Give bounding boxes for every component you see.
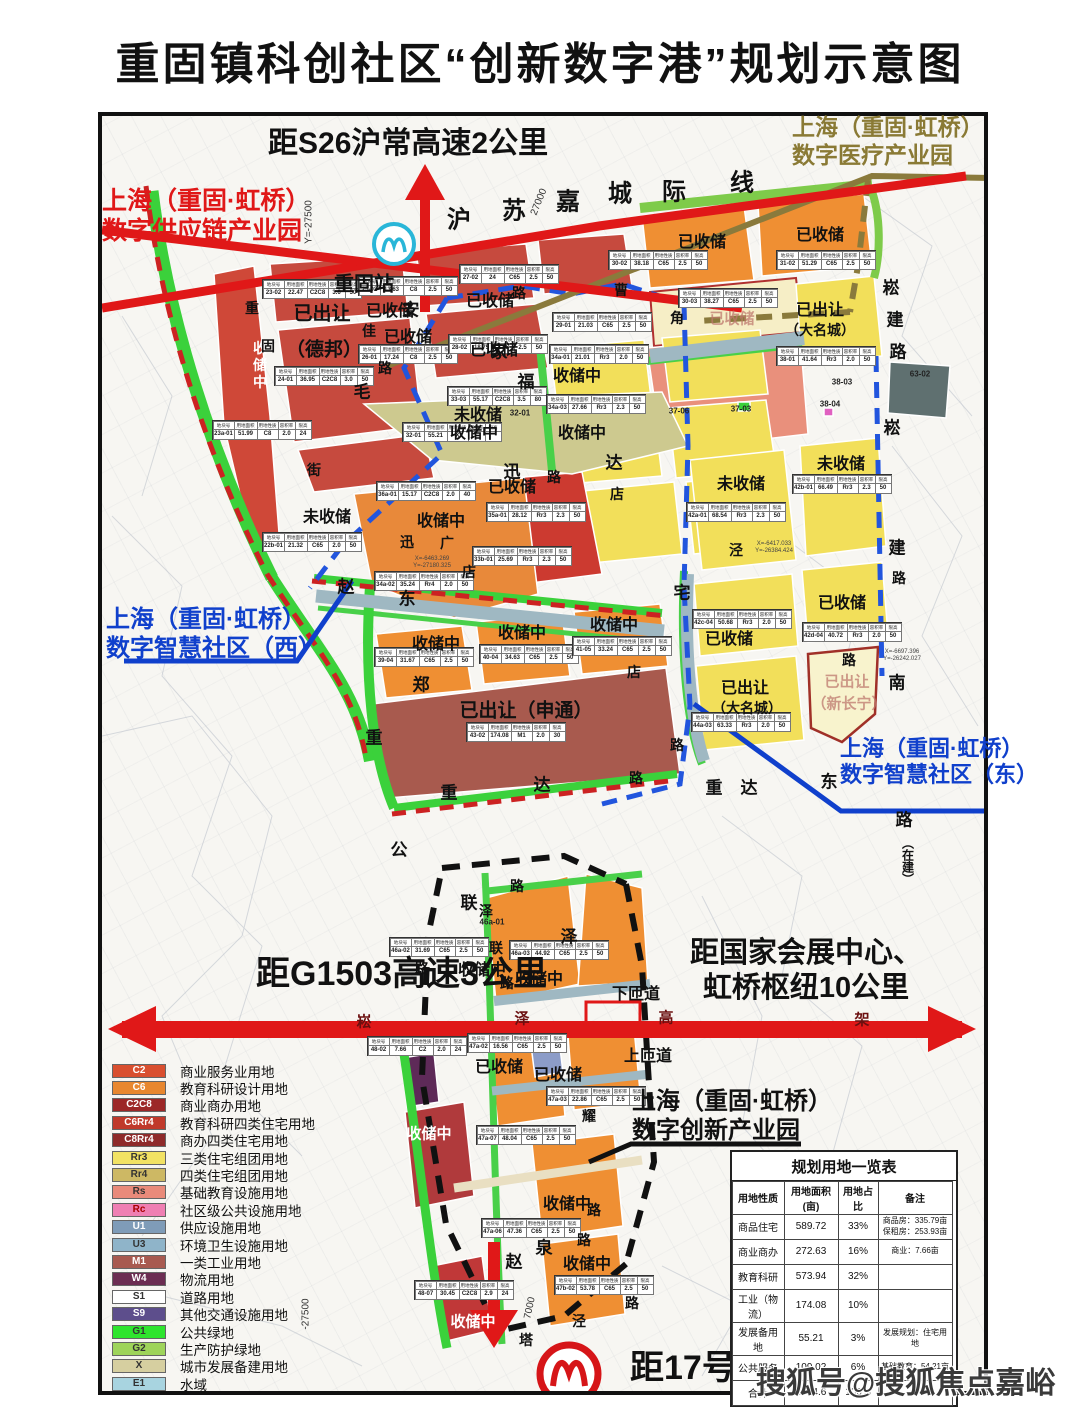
legend-swatch: M1 [112,1255,166,1269]
remark-line: 商业：7.66亩 [891,1246,939,1257]
table-cell: 商业商办 [732,1239,785,1265]
legend-swatch: U1 [112,1220,166,1234]
road-name-char: 路 [378,358,392,378]
plot-status: （大名城） [785,320,855,340]
coordinate-label: X=-6463.269 [415,556,450,562]
plot-status: 已收储 [678,228,726,252]
railway-name-char: 苏 [502,191,526,226]
road-name-char: 泾 [729,540,743,560]
annotation-smart-east: 上海（重固·虹桥） 数字智慧社区（东） [840,736,1038,789]
legend-swatch: S1 [112,1290,166,1304]
road-name-char: 店 [462,562,476,582]
legend-item: Rr3三类住宅组团用地 [112,1149,315,1166]
road-name-char: 迅 [504,458,521,483]
annotation-line: 数字创新产业园 [632,1117,832,1146]
coordinate-label: 7000 [522,1296,537,1320]
legend-swatch: X [112,1359,166,1373]
legend-item: U1供应设施用地 [112,1219,315,1236]
road-name-char: 重 [441,779,458,804]
road-name-char: 泉 [536,1234,553,1259]
coordinate-label: Y=-26242.027 [883,656,921,662]
plot-status: 已出让 [721,674,769,698]
annotation-line: 数字智慧社区（西） [106,635,322,664]
road-name-char: 公 [391,836,408,861]
road-name-char: 曹 [614,280,628,300]
plot-status: 未收储 [303,503,351,527]
annotation-g1503: 距G1503高速3公里 [256,954,547,995]
legend-swatch: C2C8 [112,1098,166,1112]
road-name-char: 塔 [519,1330,533,1350]
road-name-char: 路 [625,1293,639,1313]
plot-id: 46a-01 [480,918,505,927]
legend-item: W4物流用地 [112,1271,315,1288]
road-name-char: 南 [889,669,906,694]
legend-swatch: C2 [112,1064,166,1078]
table-cell: 174.08 [784,1289,839,1323]
table-cell: 工业（物流） [732,1289,785,1323]
plot-status: 收储中 [590,611,638,635]
plot-id: 32-01 [510,409,530,418]
legend-item: Rs基础教育设施用地 [112,1184,315,1201]
road-name-char: 家 [491,338,508,363]
legend-swatch: W4 [112,1272,166,1286]
annotation-line: 虹桥枢纽10公里 [690,971,922,1006]
annotation-line: 数字医疗产业园 [792,142,984,170]
annotation-medical-park: 上海（重固·虹桥） 数字医疗产业园 [792,114,984,169]
land-use-table-title: 规划用地一览表 [732,1152,956,1180]
plot-status: 已收储 [796,221,844,245]
annotation-line: 上海（重固·虹桥） [102,186,310,216]
legend-swatch: E1 [112,1377,166,1391]
plot-id: 63-02 [910,370,930,379]
legend-item: X城市发展备建用地 [112,1358,315,1375]
road-name-char: 广 [440,533,454,553]
road-name-char: 赵 [338,573,355,598]
road-name-char: 路 [890,338,907,363]
road-name-char: 赵 [506,1248,523,1273]
road-name-char: 路 [842,650,856,670]
legend-item: C6Rr4教育科研四类住宅用地 [112,1114,315,1131]
table-cell: 272.63 [784,1239,839,1265]
road-name-char: 路 [510,876,524,896]
table-cell: 发展备用地 [732,1322,785,1356]
plot-id: 38-03 [832,378,852,387]
legend-item: C6教育科研设计用地 [112,1079,315,1096]
road-name-char: 崧 [883,274,900,299]
plot-status: 已出让 [293,299,350,326]
coordinate-label: X=-6697.396 [885,649,920,655]
plot-status: 已收储 [384,323,432,347]
plot-status: 已出让 [824,671,869,692]
road-name-char: 固 [261,336,275,356]
plot-status: 已收储 [705,625,753,649]
road-name-char: 路 [587,1200,601,1220]
annotation-smart-west: 上海（重固·虹桥） 数字智慧社区（西） [106,606,322,664]
plot-status: 收储中 [417,507,465,531]
legend-item: S9其他交通设施用地 [112,1305,315,1322]
ramp-label: 下匝道 [612,980,660,1004]
table-remark-cell: 发展规划：住宅用地 [878,1322,953,1356]
plot-status: 已出让 [796,296,844,320]
road-name-char: 店 [627,662,641,682]
watermark: 搜狐号@搜狐焦点嘉峪关站 [756,1358,1080,1407]
legend-swatch: Rc [112,1203,166,1217]
plot-status: 已出让（申通） [459,696,592,723]
annotation-line: 上海（重固·虹桥） [792,114,984,142]
plot-status: 收储中 [450,1311,495,1332]
legend-swatch: C6Rr4 [112,1116,166,1130]
road-name-char: 达 [741,774,758,799]
viaduct-name-char: 高 [658,1007,673,1028]
coordinate-label: Y=-26384.424 [755,548,793,554]
plot-status: 已收储 [818,589,866,613]
coordinate-label: Y=-27180.325 [413,563,451,569]
plot-id: 37-06 [669,407,689,416]
legend-item: E1水域 [112,1375,315,1392]
table-cell: 10% [838,1289,879,1323]
railway-name-char: 城 [608,174,632,209]
road-name-char: 东 [821,768,838,793]
road-name-char: 重 [366,724,383,749]
station-label: 重固站 [334,268,394,297]
annotation-line: 距国家会展中心、 [690,936,922,971]
legend-swatch: Rr4 [112,1168,166,1182]
viaduct-name-char: 架 [854,1009,869,1030]
annotation-line: 数字供应链产业园 [102,216,310,246]
legend-item: U3环境卫生设施用地 [112,1236,315,1253]
table-cell: 32% [838,1264,879,1290]
annotation-convention: 距国家会展中心、 虹桥枢纽10公里 [690,936,922,1006]
legend-item: Rr4四类住宅组团用地 [112,1166,315,1183]
road-name-char: 佳 [362,321,376,341]
table-cell: 3% [838,1322,879,1356]
table-remark-cell: 商品房：335.79亩保租房：253.93亩 [878,1214,953,1240]
plot-status: 已收储 [709,308,754,329]
legend-item: C2C8商业商办用地 [112,1097,315,1114]
table-header-cell: 用地面积(亩) [784,1181,839,1215]
road-name-char: 街 [307,460,321,480]
road-name-char: 崧 [884,414,901,439]
road-name-char: 路 [512,283,526,303]
road-name-char: 路 [577,1230,591,1250]
legend-swatch: S9 [112,1307,166,1321]
ramp-label: 上匝道 [624,1042,672,1066]
table-header-cell: 用地性质 [732,1181,785,1215]
road-name-char: 毛 [354,378,371,403]
road-name-char: 福 [518,368,535,393]
plot-status: （大名城） [712,698,782,718]
table-cell: 55.21 [784,1322,839,1356]
table-header-cell: 备注 [878,1181,953,1215]
table-remark-cell [878,1264,953,1290]
legend-swatch: Rs [112,1185,166,1199]
road-name-char: 路 [896,806,913,831]
road-name-char: 达 [606,449,623,474]
table-remark-cell [878,1289,953,1323]
plot-status: （新长宁） [811,693,886,714]
road-name-char: 东 [399,585,416,610]
legend-item: G2生产防护绿地 [112,1340,315,1357]
road-name-char: 重 [706,774,723,799]
plot-status: 未收储 [817,450,865,474]
railway-name-char: 线 [730,163,754,198]
coordinate-label: 27000 [529,187,550,217]
annotation-line: 数字智慧社区（东） [840,762,1038,788]
legend-swatch: U3 [112,1238,166,1252]
plot-status: 收储中 [498,619,546,643]
plot-id: 37-03 [731,405,751,414]
road-name-char: 泽 [561,923,578,948]
page-title: 重固镇科创社区“创新数字港”规划示意图 [0,28,1080,92]
road-name-char: 路 [547,467,561,487]
road-name-char: 建 [889,534,906,559]
legend-item: C8Rr4商办四类住宅用地 [112,1132,315,1149]
railway-name-char: 际 [662,172,686,207]
road-name-char: 路 [892,568,906,588]
railway-name-char: 嘉 [556,182,580,217]
legend-swatch: G1 [112,1325,166,1339]
road-name-note: （在建） [900,837,917,885]
road-name-char: 迅 [400,532,414,552]
annotation-line: 上海（重固·虹桥） [632,1088,832,1117]
table-cell: 573.94 [784,1264,839,1290]
plot-status: 未收储 [717,470,765,494]
road-name-char: 建 [887,306,904,331]
road-name-char: 郑 [413,671,430,696]
legend-swatch: C6 [112,1081,166,1095]
road-name-char: 路 [670,735,684,755]
plot-status: 收储中 [406,1123,451,1144]
annotation-line: 上海（重固·虹桥） [840,736,1038,762]
plot-status: （德邦） [286,335,362,362]
legend-item: G1公共绿地 [112,1323,315,1340]
plot-status: 收储中 [412,630,460,654]
legend-swatch: Rr3 [112,1151,166,1165]
road-name-char: 安 [403,296,420,321]
road-name-char: 联 [461,889,478,914]
table-remark-cell: 商业：7.66亩 [878,1239,953,1265]
legend-item: M1一类工业用地 [112,1253,315,1270]
table-cell: 商品住宅 [732,1214,785,1240]
plot-status: 收储中 [450,419,498,443]
viaduct-name-char: 崧 [356,1011,371,1032]
plot-status: 已收储 [475,1053,523,1077]
legend-swatch: C8Rr4 [112,1133,166,1147]
plot-status: 收储中 [558,419,606,443]
plot-status: 收储中 [563,1250,611,1274]
plot-status: 收储中 [553,362,601,386]
road-name-char: 店 [610,484,624,504]
road-name-char: 达 [534,771,551,796]
table-header-cell: 用地占比 [838,1181,879,1215]
legend-item: Rc社区级公共设施用地 [112,1201,315,1218]
legend-item: S1道路用地 [112,1288,315,1305]
remark-line: 发展规划：住宅用地 [880,1328,951,1350]
legend: C2商业服务业用地C6教育科研设计用地C2C8商业商办用地C6Rr4教育科研四类… [112,1062,315,1392]
plot-status: 收储中 [543,1190,591,1214]
road-name-char: 路 [629,768,643,788]
remark-line: 保租房：253.93亩 [883,1227,947,1238]
legend-swatch: G2 [112,1342,166,1356]
annotation-s26: 距S26沪常高速2公里 [268,126,548,162]
plot-id: 38-04 [820,400,840,409]
railway-name-char: 沪 [447,200,471,235]
road-name-char: 重 [245,298,259,318]
road-name-char: 宅 [674,579,691,604]
planning-map-page: 重固镇科创社区“创新数字港”规划示意图 [0,0,1080,1407]
legend-label: 水域 [180,1374,207,1394]
annotation-supply-chain-park: 上海（重固·虹桥） 数字供应链产业园 [102,186,310,246]
legend-item: C2商业服务业用地 [112,1062,315,1079]
remark-line: 商品房：335.79亩 [883,1216,947,1227]
road-name-char: 耀 [582,1106,596,1126]
viaduct-name-char: 泽 [514,1008,529,1029]
table-cell: 589.72 [784,1214,839,1240]
table-cell: 33% [838,1214,879,1240]
annotation-innovation-park: 上海（重固·虹桥） 数字创新产业园 [632,1088,832,1146]
plot-status: 已收储 [534,1061,582,1085]
road-name-char: 角 [670,308,684,328]
road-name-char: 泾 [572,1311,586,1331]
table-cell: 教育科研 [732,1264,785,1290]
plot-status: 已收储 [466,287,514,311]
annotation-line: 上海（重固·虹桥） [106,606,322,635]
coordinate-label: X=-6417.033 [757,541,792,547]
table-cell: 16% [838,1239,879,1265]
